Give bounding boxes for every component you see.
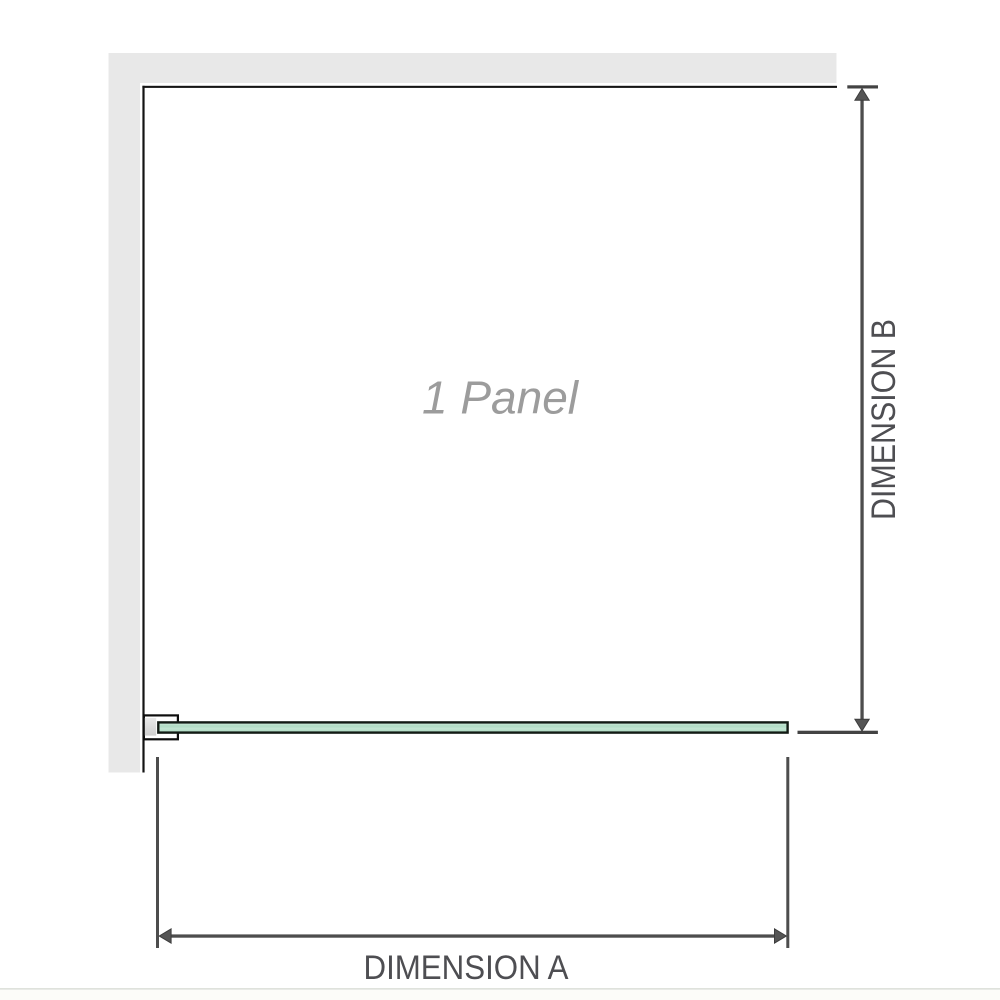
svg-text:DIMENSION A: DIMENSION A [364,949,569,987]
svg-text:DIMENSION B: DIMENSION B [865,319,903,520]
svg-text:1 Panel: 1 Panel [422,372,580,424]
